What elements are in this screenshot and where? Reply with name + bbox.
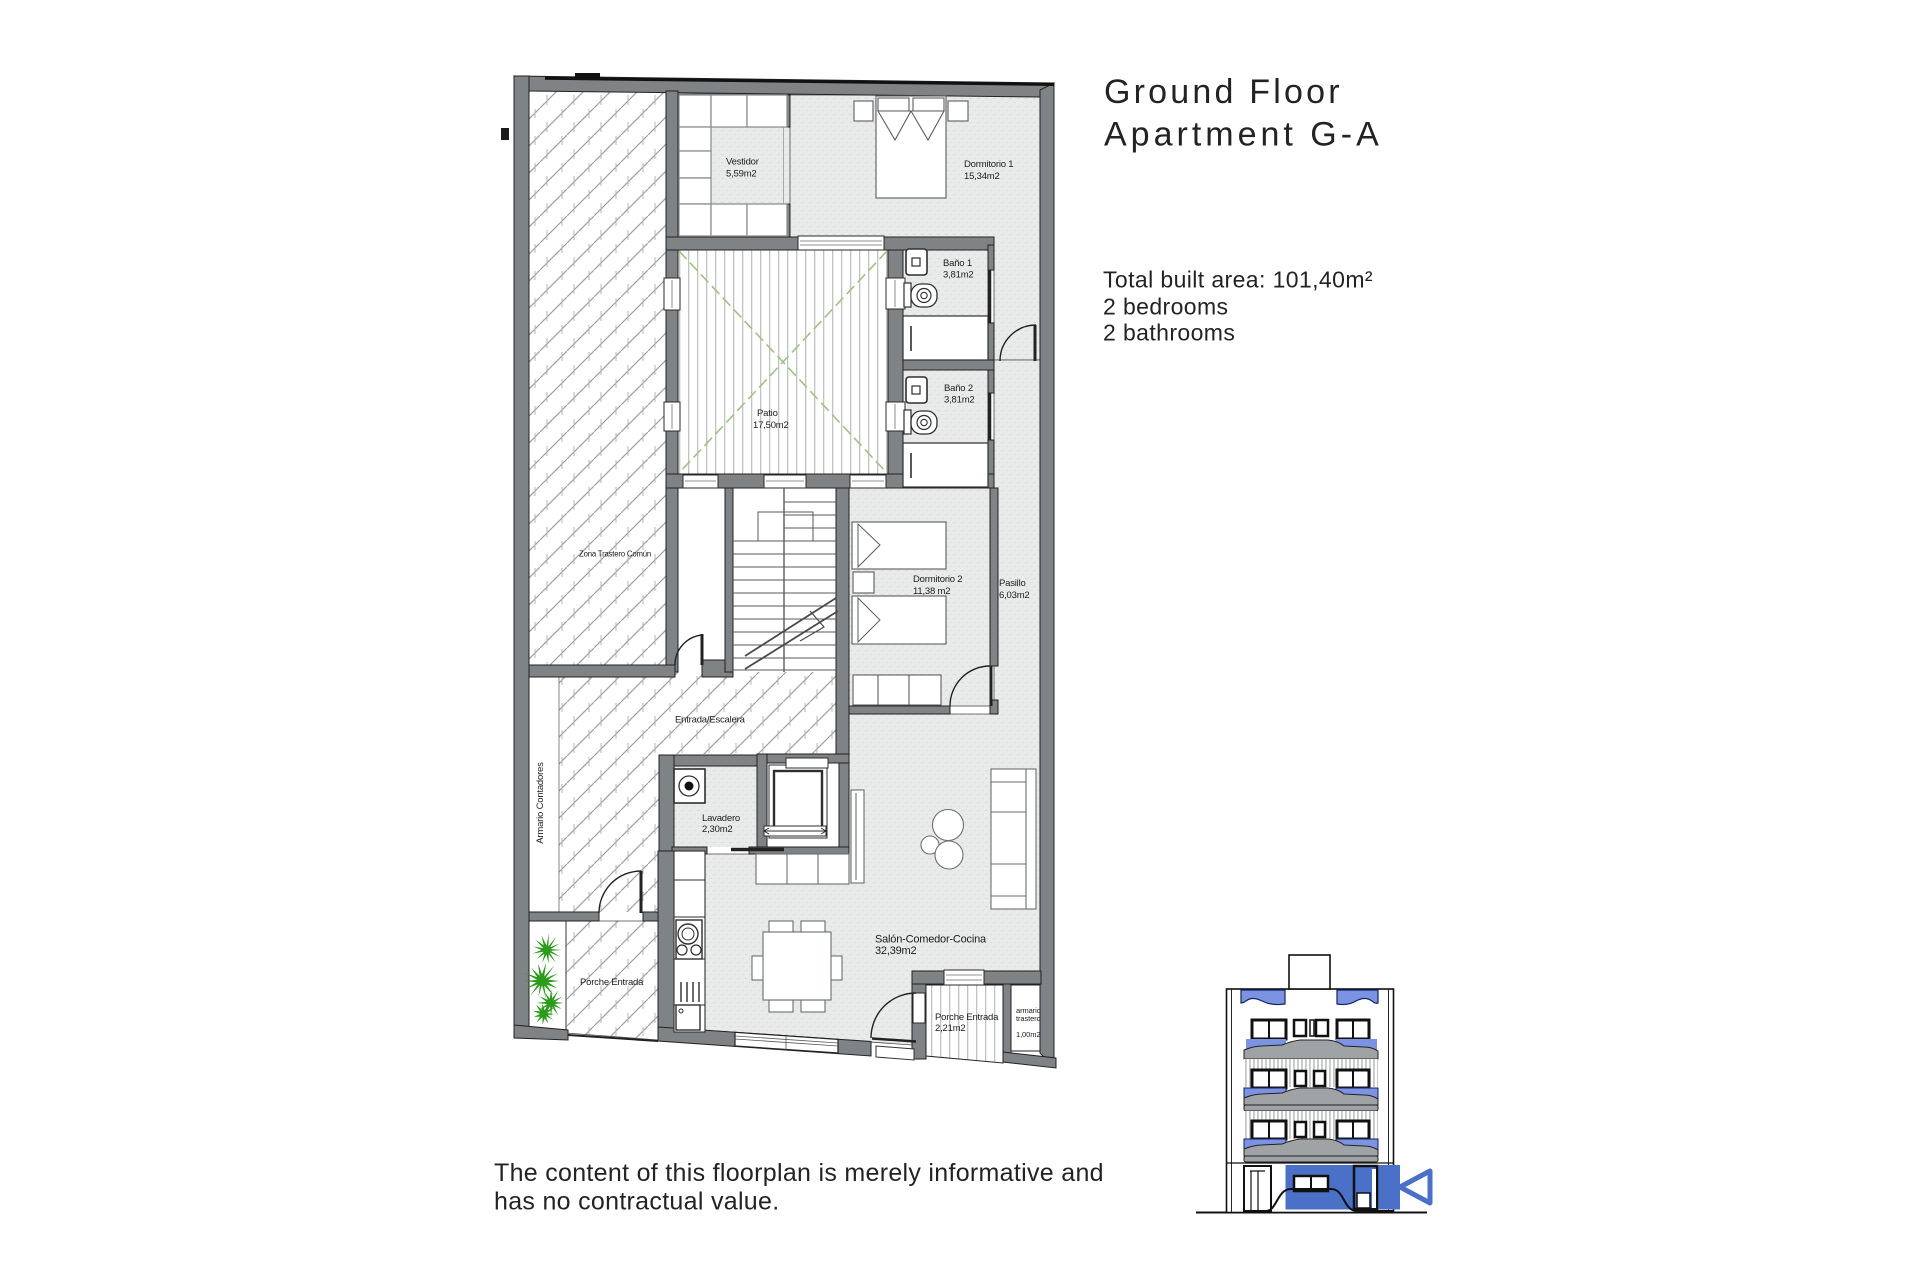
svg-text:Porche Entrada: Porche Entrada xyxy=(935,1012,999,1023)
svg-text:Salón-Comedor-Cocina: Salón-Comedor-Cocina xyxy=(875,934,987,946)
svg-text:has no contractual value.: has no contractual value. xyxy=(494,1188,779,1216)
svg-text:2 bathrooms: 2 bathrooms xyxy=(1103,320,1235,346)
svg-text:2 bedrooms: 2 bedrooms xyxy=(1103,294,1228,320)
svg-text:Lavadero: Lavadero xyxy=(702,813,740,824)
svg-text:Total built area: 101,40m²: Total built area: 101,40m² xyxy=(1103,267,1373,293)
svg-text:5,59m2: 5,59m2 xyxy=(726,169,757,180)
svg-text:The content of this floorplan: The content of this floorplan is merely … xyxy=(494,1159,1104,1187)
svg-text:trastero: trastero xyxy=(1016,1014,1041,1023)
svg-text:Porche Entrada: Porche Entrada xyxy=(580,977,644,988)
svg-text:2,30m2: 2,30m2 xyxy=(702,824,733,835)
svg-text:Baño 2: Baño 2 xyxy=(944,383,973,394)
svg-text:3,81m2: 3,81m2 xyxy=(943,270,974,281)
svg-text:Dormitorio 1: Dormitorio 1 xyxy=(964,159,1013,170)
svg-text:Entrada/Escalera: Entrada/Escalera xyxy=(675,715,746,726)
svg-text:6,03m2: 6,03m2 xyxy=(999,590,1030,601)
svg-text:2,21m2: 2,21m2 xyxy=(935,1023,966,1034)
svg-text:Dormitorio 2: Dormitorio 2 xyxy=(913,574,962,585)
svg-text:Vestidor: Vestidor xyxy=(726,157,759,168)
svg-text:Armario Contadores: Armario Contadores xyxy=(535,762,546,844)
svg-text:15,34m2: 15,34m2 xyxy=(964,171,1000,182)
svg-text:Zona Trastero Común: Zona Trastero Común xyxy=(579,550,651,559)
svg-text:32,39m2: 32,39m2 xyxy=(875,945,916,957)
svg-text:17,50m2: 17,50m2 xyxy=(753,420,789,431)
svg-text:Baño 1: Baño 1 xyxy=(943,258,972,269)
svg-text:Apartment G-A: Apartment G-A xyxy=(1104,116,1383,154)
svg-text:Pasillo: Pasillo xyxy=(999,578,1026,589)
svg-text:Ground Floor: Ground Floor xyxy=(1104,73,1343,111)
svg-text:1,00m2: 1,00m2 xyxy=(1016,1030,1040,1039)
svg-text:3,81m2: 3,81m2 xyxy=(944,395,975,406)
svg-text:Patio: Patio xyxy=(757,408,778,419)
svg-text:11,38 m2: 11,38 m2 xyxy=(913,586,950,597)
